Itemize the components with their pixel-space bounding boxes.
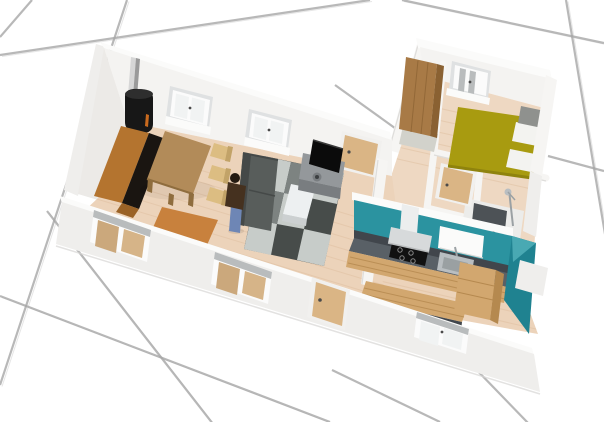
viewport-3d[interactable] xyxy=(0,0,604,422)
window-handle xyxy=(268,129,271,132)
window-handle xyxy=(441,331,444,334)
window-handle xyxy=(189,107,192,110)
door-handle xyxy=(347,150,350,153)
door-handle xyxy=(318,298,322,302)
person-head xyxy=(230,173,240,183)
window-handle xyxy=(469,81,472,84)
door-handle xyxy=(446,184,449,187)
floorplan-3d-scene[interactable] xyxy=(0,0,604,422)
person-body xyxy=(225,182,246,210)
stove-top xyxy=(125,89,153,99)
wardrobe[interactable] xyxy=(399,57,444,138)
table-leg xyxy=(168,193,174,206)
